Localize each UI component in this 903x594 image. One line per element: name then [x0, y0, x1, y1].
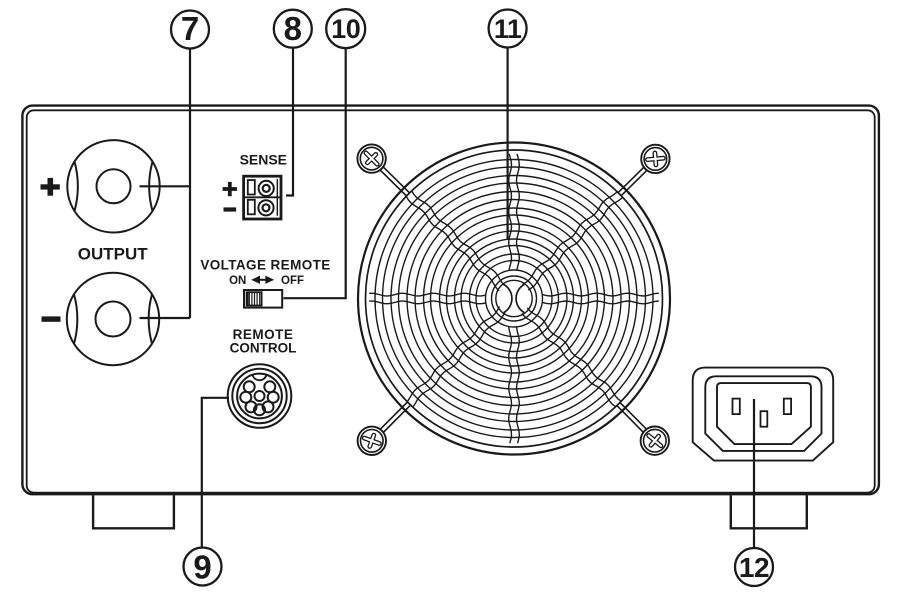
svg-text:8: 8	[284, 10, 302, 47]
svg-text:ON: ON	[229, 275, 246, 287]
svg-text:12: 12	[739, 552, 769, 583]
svg-text:SENSE: SENSE	[240, 152, 287, 168]
svg-text:VOLTAGE REMOTE: VOLTAGE REMOTE	[200, 258, 330, 273]
svg-text:9: 9	[193, 548, 211, 585]
svg-text:OUTPUT: OUTPUT	[78, 244, 149, 263]
svg-text:OFF: OFF	[281, 275, 304, 287]
svg-text:7: 7	[181, 10, 199, 47]
svg-text:10: 10	[331, 14, 360, 44]
svg-text:11: 11	[494, 14, 522, 44]
svg-text:CONTROL: CONTROL	[230, 341, 297, 356]
